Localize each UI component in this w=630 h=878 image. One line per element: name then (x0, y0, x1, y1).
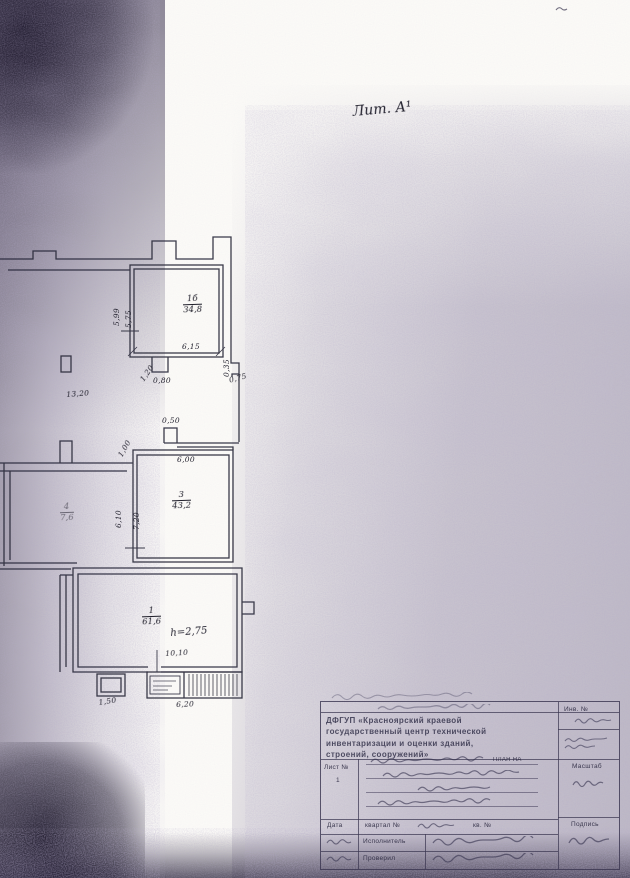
dim-10-10: 10,10 (165, 648, 188, 658)
title-block-line (558, 817, 619, 818)
room-1-label: 1 61,6 (142, 606, 162, 628)
title-block-line (558, 729, 619, 730)
dim-7-20: 7,20 (132, 512, 141, 530)
room-1b-area: 34,8 (183, 305, 202, 316)
room-1b-number: 1б (183, 294, 202, 306)
title-block-line (321, 851, 558, 852)
handwritten-scale-value (571, 778, 607, 788)
room-4-area: 7,6 (60, 513, 74, 523)
title-block-line (358, 759, 359, 869)
dim-5-75: 5,75 (124, 310, 133, 328)
room-3-number: 3 (172, 490, 191, 502)
dim-13-20: 13,20 (66, 388, 90, 399)
handwritten-entry (369, 756, 487, 765)
smudged-text (376, 704, 496, 712)
handwritten-entry (563, 736, 615, 752)
title-block-line (558, 702, 559, 869)
handwritten-entry (381, 770, 521, 779)
dim-6-20: 6,20 (176, 699, 194, 709)
inventory-number-label: Инв. № (564, 706, 588, 713)
executor-label: Исполнитель (363, 838, 406, 845)
dim-0-80: 0,80 (153, 376, 171, 385)
quarter-label: квартал № (365, 822, 400, 829)
handwritten-date (325, 854, 355, 863)
title-block-line (321, 819, 558, 820)
apartment-label: кв. № (473, 822, 491, 829)
dim-6-15: 6,15 (182, 342, 200, 351)
dim-6-00: 6,00 (177, 455, 195, 464)
room-1-area: 61,6 (142, 617, 161, 628)
handwritten-entry (376, 798, 496, 807)
title-block: ДФГУП «Красноярский краевой государствен… (320, 701, 620, 870)
handwritten-entry (573, 716, 613, 725)
title-block-line (321, 834, 558, 835)
room-4-label: 4 7,6 (60, 502, 74, 523)
handwritten-date (325, 837, 355, 846)
date-label: Дата (327, 822, 343, 829)
handwritten-entry (416, 821, 456, 830)
dim-6-10: 6,10 (114, 510, 123, 528)
signature-label: Подпись (571, 821, 599, 828)
checker-signature (431, 853, 541, 864)
plan-caption: план на (493, 757, 522, 763)
sheet-number: 1 (336, 777, 340, 784)
signature-scribble (567, 835, 611, 847)
room-3-area: 43,2 (172, 501, 191, 512)
room-3-label: 3 43,2 (172, 490, 192, 512)
room-1-number: 1 (142, 606, 161, 618)
dim-5-99: 5,99 (112, 308, 121, 326)
checker-label: Проверил (363, 855, 395, 862)
organization-name: ДФГУП «Красноярский краевой государствен… (326, 715, 554, 760)
title-block-line (425, 834, 426, 869)
executor-signature (431, 836, 541, 847)
scanned-floor-plan-page: Лит. А¹ 1б 34,8 3 43,2 4 7,6 1 61,6 h=2,… (0, 0, 630, 878)
dim-0-50: 0,50 (162, 416, 180, 425)
handwritten-entry (416, 784, 496, 793)
sheet-label: Лист № (324, 764, 349, 771)
room-4-number: 4 (60, 502, 74, 513)
scale-label: Масштаб (572, 763, 602, 770)
room-1b-label: 1б 34,8 (183, 294, 203, 316)
